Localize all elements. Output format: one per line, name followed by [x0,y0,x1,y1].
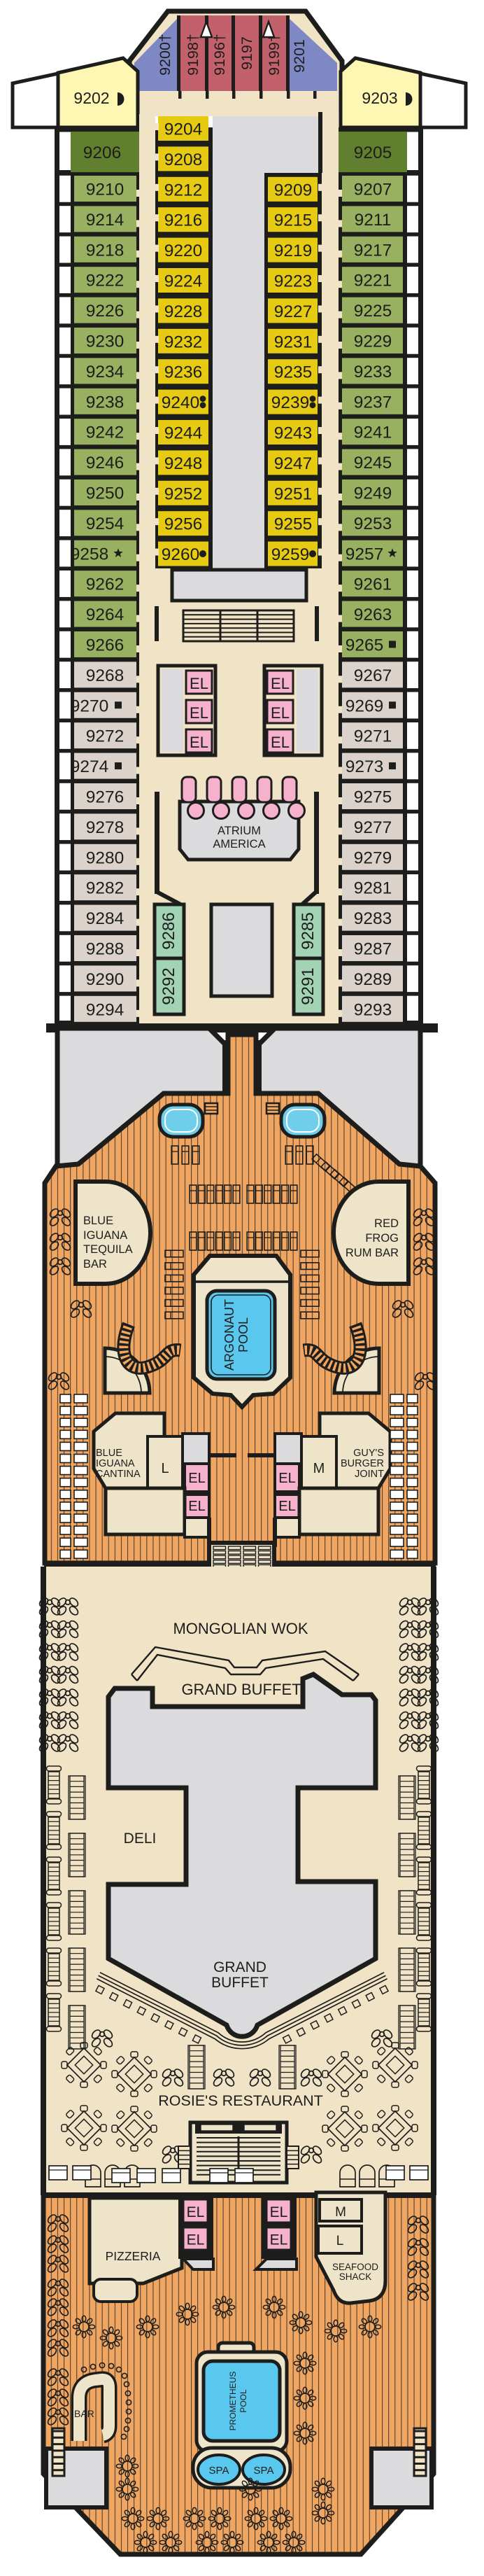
svg-text:BLUE: BLUE [83,1214,113,1227]
svg-text:9209: 9209 [274,181,313,199]
svg-text:9214: 9214 [86,211,124,230]
svg-text:9283: 9283 [354,909,392,928]
svg-text:BURGER: BURGER [341,1458,384,1469]
svg-text:9226: 9226 [86,302,124,321]
svg-text:9228: 9228 [164,302,203,321]
svg-text:EL: EL [271,734,290,751]
svg-text:EL: EL [278,1471,295,1486]
svg-text:9197: 9197 [239,36,255,70]
svg-text:ROSIE'S RESTAURANT: ROSIE'S RESTAURANT [158,2092,322,2109]
svg-text:EL: EL [190,704,208,722]
svg-text:9208: 9208 [164,150,203,169]
svg-text:9264: 9264 [86,605,124,624]
svg-text:9274: 9274 [71,757,109,776]
svg-text:SPA: SPA [209,2465,229,2477]
svg-text:9263: 9263 [354,605,392,624]
svg-text:9202: 9202 [73,89,109,107]
svg-text:9246: 9246 [86,454,124,472]
svg-text:9292: 9292 [159,967,178,1004]
svg-text:9201: 9201 [291,39,308,73]
svg-text:RUM BAR: RUM BAR [346,1247,399,1259]
svg-text:9289: 9289 [354,970,392,989]
svg-text:SHACK: SHACK [339,2271,372,2282]
svg-text:9273: 9273 [346,757,384,776]
svg-text:GRAND: GRAND [213,1959,266,1975]
svg-text:IGUANA: IGUANA [96,1458,135,1469]
svg-text:9281: 9281 [354,879,392,898]
svg-text:EL: EL [187,2232,205,2248]
svg-text:POOL: POOL [239,2389,248,2413]
svg-text:9221: 9221 [354,272,392,290]
svg-text:9262: 9262 [86,575,124,594]
svg-text:9229: 9229 [354,332,392,351]
svg-text:9255: 9255 [274,515,313,534]
svg-text:9276: 9276 [86,788,124,807]
svg-text:M: M [335,2205,346,2220]
svg-text:9258: 9258 [71,545,109,563]
svg-text:9267: 9267 [354,666,392,685]
svg-text:9222: 9222 [86,272,124,290]
svg-text:9242: 9242 [86,423,124,442]
svg-text:9270: 9270 [71,696,109,715]
svg-text:9240: 9240 [162,393,200,412]
svg-text:9239: 9239 [271,393,310,412]
svg-text:9279: 9279 [354,848,392,867]
svg-text:9290: 9290 [86,970,124,989]
svg-text:9205: 9205 [354,143,392,162]
svg-text:9275: 9275 [354,788,392,807]
svg-text:9266: 9266 [86,636,124,655]
svg-text:EL: EL [270,2232,288,2248]
svg-text:9217: 9217 [354,241,392,260]
svg-text:9249: 9249 [354,484,392,503]
svg-text:GRAND BUFFET: GRAND BUFFET [181,1681,301,1698]
svg-text:9251: 9251 [274,484,313,503]
svg-text:EL: EL [271,704,290,722]
svg-text:9212: 9212 [164,181,203,199]
svg-text:9223: 9223 [274,272,313,291]
svg-text:EL: EL [270,2204,288,2220]
svg-text:9284: 9284 [86,909,124,928]
svg-text:JOINT: JOINT [355,1469,384,1480]
svg-text:9269: 9269 [346,696,384,715]
svg-text:FROG: FROG [365,1232,399,1245]
svg-text:9237: 9237 [354,393,392,412]
svg-text:BAR: BAR [74,2408,94,2419]
svg-text:9248: 9248 [164,454,203,473]
svg-text:9252: 9252 [164,484,203,503]
svg-text:9277: 9277 [354,818,392,837]
svg-text:BLUE: BLUE [96,1448,122,1459]
svg-text:EL: EL [188,1499,205,1514]
svg-text:9257: 9257 [346,545,384,563]
svg-text:9204: 9204 [164,120,203,139]
svg-text:9280: 9280 [86,848,124,867]
svg-text:9236: 9236 [164,363,203,382]
svg-text:AMERICA: AMERICA [213,838,265,850]
svg-text:9282: 9282 [86,879,124,898]
svg-text:L: L [336,2234,344,2248]
svg-text:9196†: 9196† [211,34,228,76]
svg-text:PIZZERIA: PIZZERIA [106,2249,161,2263]
svg-text:POOL: POOL [236,1317,250,1352]
svg-text:TEQUILA: TEQUILA [83,1243,133,1256]
svg-text:9285: 9285 [299,912,318,949]
svg-text:9220: 9220 [164,241,203,260]
svg-text:9241: 9241 [354,423,392,442]
svg-text:9253: 9253 [354,514,392,533]
svg-text:SPA: SPA [254,2465,274,2477]
svg-text:EL: EL [278,1499,295,1514]
svg-text:9293: 9293 [354,1000,392,1019]
svg-text:9227: 9227 [274,302,313,321]
svg-text:9243: 9243 [274,424,313,443]
svg-text:9287: 9287 [354,940,392,959]
svg-text:9200†: 9200† [157,34,173,76]
svg-text:9199†: 9199† [266,34,283,76]
svg-text:9291: 9291 [299,967,318,1004]
svg-text:9247: 9247 [274,454,313,473]
svg-text:9268: 9268 [86,666,124,685]
svg-text:9254: 9254 [86,514,124,533]
svg-text:9233: 9233 [354,363,392,381]
svg-text:9261: 9261 [354,575,392,594]
svg-text:BAR: BAR [83,1258,107,1270]
svg-text:9265: 9265 [346,636,384,655]
svg-text:9198†: 9198† [185,34,201,76]
svg-text:9256: 9256 [164,515,203,534]
svg-text:SEAFOOD: SEAFOOD [332,2262,378,2272]
svg-text:EL: EL [271,675,290,692]
svg-text:CANTINA: CANTINA [96,1469,141,1480]
svg-text:9245: 9245 [354,454,392,472]
svg-text:9294: 9294 [86,1000,124,1019]
svg-text:9224: 9224 [164,272,203,291]
svg-text:9219: 9219 [274,241,313,260]
svg-text:9260: 9260 [162,545,200,564]
svg-text:9244: 9244 [164,424,203,443]
svg-text:9206: 9206 [83,143,122,162]
svg-text:9207: 9207 [354,181,392,199]
svg-text:9288: 9288 [86,940,124,959]
svg-text:9210: 9210 [86,181,124,199]
svg-text:9235: 9235 [274,363,313,382]
svg-text:ATRIUM: ATRIUM [218,825,261,837]
svg-text:9250: 9250 [86,484,124,503]
svg-text:ARGONAUT: ARGONAUT [222,1299,236,1371]
svg-text:9218: 9218 [86,241,124,260]
svg-text:EL: EL [188,1471,205,1486]
svg-text:EL: EL [187,2204,205,2220]
svg-text:9215: 9215 [274,211,313,230]
svg-text:EL: EL [190,734,208,751]
svg-text:9231: 9231 [274,332,313,351]
svg-text:9211: 9211 [355,211,392,230]
svg-text:BUFFET: BUFFET [211,1975,269,1991]
svg-text:9234: 9234 [86,363,124,381]
svg-text:9232: 9232 [164,332,203,351]
svg-text:9203: 9203 [362,89,397,107]
svg-text:EL: EL [190,675,208,692]
svg-text:PROMETHEUS: PROMETHEUS [228,2372,238,2431]
svg-text:9225: 9225 [354,302,392,321]
svg-text:9271: 9271 [354,727,392,746]
svg-text:MONGOLIAN WOK: MONGOLIAN WOK [173,1620,308,1637]
svg-text:9216: 9216 [164,211,203,230]
svg-text:9238: 9238 [86,393,124,412]
svg-text:9259: 9259 [271,545,310,564]
svg-text:DELI: DELI [124,1830,157,1847]
svg-text:9272: 9272 [86,727,124,746]
svg-text:GUY'S: GUY'S [353,1448,384,1459]
svg-text:RED: RED [374,1217,399,1230]
svg-text:IGUANA: IGUANA [83,1229,127,1242]
svg-text:9286: 9286 [159,912,178,949]
svg-text:9230: 9230 [86,332,124,351]
svg-text:9278: 9278 [86,818,124,837]
svg-text:L: L [161,1461,169,1476]
svg-text:M: M [313,1461,325,1476]
